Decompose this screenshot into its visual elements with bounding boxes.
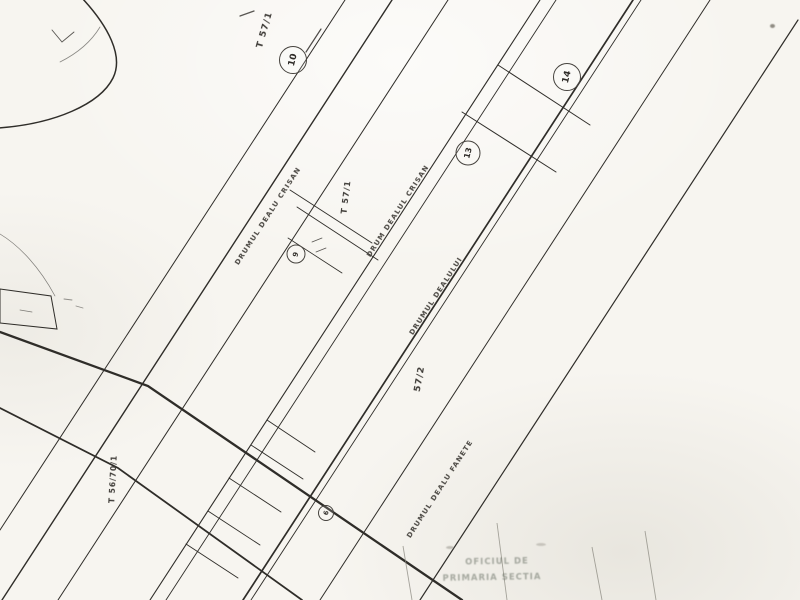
scan-speck — [770, 24, 775, 28]
cadastral-map-scan: T 57/1 T 57/1 57/2 T 56/70/1 DRUMUL DEAL… — [0, 0, 800, 600]
strip-line — [58, 0, 448, 600]
curved-parcel-boundary — [0, 0, 117, 128]
faint-fold-line — [403, 546, 412, 600]
parcel-number: 6 — [322, 510, 331, 516]
map-linework — [0, 0, 800, 600]
parcel-number: 9 — [292, 251, 301, 258]
parcel-number: 13 — [462, 147, 473, 160]
stamp-text-line2: PRIMARIA SECTIA — [442, 572, 541, 584]
strip-line — [0, 0, 345, 530]
parcel-marker-10: 10 — [279, 46, 307, 74]
parcel-rung — [208, 511, 260, 545]
strip-line — [251, 0, 641, 600]
faint-fold-line — [645, 531, 656, 600]
scan-speck — [536, 543, 546, 546]
parcel-rung — [462, 112, 556, 172]
small-parcel-box — [0, 289, 57, 329]
parcel-rung — [290, 190, 372, 243]
strip-line — [166, 0, 556, 600]
parcel-rung — [267, 420, 315, 452]
parcel-marker-9: 9 — [287, 245, 306, 264]
parcel-number: 14 — [561, 70, 574, 85]
strip-line — [320, 0, 710, 600]
stamp-text-line1: OFICIUL DE — [465, 556, 529, 567]
parcel-marker-13: 13 — [456, 141, 481, 166]
parcel-marker-6: 6 — [318, 505, 334, 521]
faint-fold-line — [592, 547, 602, 600]
parcel-marker-14: 14 — [553, 63, 581, 91]
road-line-fanete — [420, 20, 798, 600]
scan-speck — [446, 546, 454, 549]
road-line-crisan-2 — [150, 0, 540, 600]
parcel-number: 10 — [287, 53, 300, 68]
parcel-rung — [229, 478, 281, 512]
crossing-road — [0, 332, 462, 600]
